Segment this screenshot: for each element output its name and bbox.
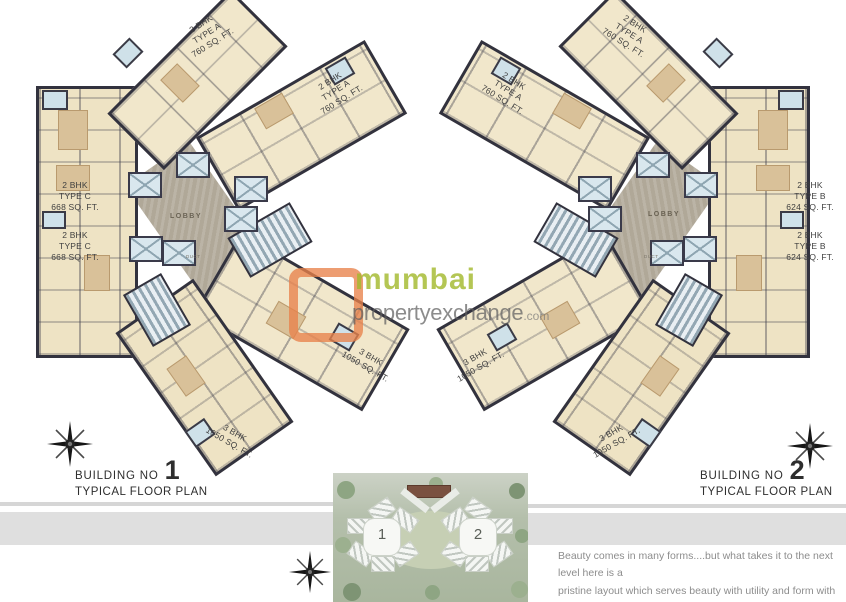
bathroom xyxy=(778,90,804,110)
lift-shaft xyxy=(234,176,268,202)
wing-bottom xyxy=(552,279,730,477)
bathroom xyxy=(702,37,733,68)
duct-label: DUCT xyxy=(186,254,201,259)
bathroom xyxy=(491,56,522,85)
furniture xyxy=(640,355,679,397)
lift-shaft xyxy=(650,240,684,266)
furniture xyxy=(56,165,90,191)
building-2-graphic xyxy=(438,15,818,465)
furniture xyxy=(254,93,294,130)
unit-label-2bhk-type-c-upper: 2 BHK TYPE C 668 SQ. FT. xyxy=(28,180,122,213)
staircase xyxy=(227,202,312,278)
wing-top-right xyxy=(196,40,407,211)
building-subtitle: TYPICAL FLOOR PLAN xyxy=(75,486,208,498)
unit-label-2bhk-type-a-top: 2 BHK TYPE A 760 SQ. FT. xyxy=(590,0,669,66)
tree xyxy=(343,583,361,601)
site-building-2-number: 2 xyxy=(441,526,515,543)
lift-shaft xyxy=(128,172,162,198)
furniture xyxy=(84,255,110,291)
site-building-1-number: 1 xyxy=(345,526,419,543)
staircase xyxy=(655,273,723,347)
building-title-prefix: BUILDING NO xyxy=(700,470,784,482)
gray-band-right xyxy=(528,513,846,545)
furniture xyxy=(756,165,790,191)
building-1-graphic xyxy=(28,15,408,465)
compass-icon xyxy=(44,420,96,468)
building-number: 2 xyxy=(790,460,806,482)
building-number: 1 xyxy=(165,460,181,482)
lift-shaft xyxy=(683,236,717,262)
bathroom xyxy=(42,211,66,229)
tree xyxy=(509,483,525,499)
unit-label-2bhk-type-a-right: 2 BHK TYPE A 760 SQ. FT. xyxy=(297,57,376,123)
brand-name-bottom: propertyexchange.com xyxy=(352,300,549,326)
lift-shaft xyxy=(636,152,670,178)
furniture xyxy=(552,93,592,130)
lift-shaft xyxy=(684,172,718,198)
furniture xyxy=(758,110,788,150)
wing-top-left xyxy=(439,40,650,211)
unit-label-3bhk-bottom: 3 BHK 1050 SQ. FT. xyxy=(194,409,271,466)
duct-label: DUCT xyxy=(644,254,659,259)
wing-right xyxy=(708,86,810,358)
building-title-prefix: BUILDING NO xyxy=(75,470,159,482)
divider-line-right xyxy=(528,504,846,508)
building-1-title: BUILDING NO 1 TYPICAL FLOOR PLAN xyxy=(75,460,208,498)
building-2-title: BUILDING NO 2 TYPICAL FLOOR PLAN xyxy=(700,460,833,498)
tree xyxy=(337,481,355,499)
site-wing xyxy=(465,556,489,572)
furniture xyxy=(166,355,205,397)
compass-icon xyxy=(288,550,332,594)
unit-label-2bhk-type-c-lower: 2 BHK TYPE C 668 SQ. FT. xyxy=(28,230,122,263)
site-wing xyxy=(371,556,395,572)
lift-shaft xyxy=(588,206,622,232)
unit-label-3bhk-left: 3 BHK 1050 SQ. FT. xyxy=(440,333,517,390)
unit-label-2bhk-type-a-top: 2 BHK TYPE A 760 SQ. FT. xyxy=(168,0,247,66)
staircase xyxy=(533,202,618,278)
lift-shaft xyxy=(578,176,612,202)
furniture xyxy=(646,63,686,103)
building-subtitle: TYPICAL FLOOR PLAN xyxy=(700,486,833,498)
bathroom xyxy=(184,418,215,448)
tree xyxy=(515,529,528,543)
staircase xyxy=(123,273,191,347)
lobby-area xyxy=(571,141,721,309)
lobby-label: LOBBY xyxy=(170,213,202,220)
lift-shaft xyxy=(176,152,210,178)
brand-name-top: mumbai xyxy=(355,263,476,297)
lift-shaft xyxy=(162,240,196,266)
wing-top xyxy=(558,0,738,170)
floorplan-sheet: 2 BHK TYPE A 760 SQ. FT. 2 BHK TYPE A 76… xyxy=(0,0,846,602)
marketing-caption: Beauty comes in many forms....but what t… xyxy=(558,548,838,602)
bathroom xyxy=(487,322,518,351)
unit-label-2bhk-type-b-upper: 2 BHK TYPE B 624 SQ. FT. xyxy=(774,180,846,213)
furniture xyxy=(736,255,762,291)
bathroom xyxy=(42,90,68,110)
lift-shaft xyxy=(129,236,163,262)
tree xyxy=(425,585,440,600)
bathroom xyxy=(112,37,143,68)
wing-bottom xyxy=(115,279,293,477)
furniture xyxy=(160,63,200,103)
compass-icon xyxy=(784,422,836,470)
furniture xyxy=(58,110,88,150)
site-building-1: 1 xyxy=(345,500,419,574)
unit-label-2bhk-type-b-lower: 2 BHK TYPE B 624 SQ. FT. xyxy=(774,230,846,263)
unit-label-3bhk-right: 3 BHK 1050 SQ. FT. xyxy=(330,333,407,390)
unit-label-2bhk-type-a-left: 2 BHK TYPE A 760 SQ. FT. xyxy=(469,57,548,123)
brand-suffix: .com xyxy=(523,309,549,323)
caption-line-1: Beauty comes in many forms....but what t… xyxy=(558,548,838,583)
site-plan-image: 1 2 xyxy=(333,473,528,602)
wing-left xyxy=(36,86,138,358)
bathroom xyxy=(325,56,356,85)
lobby-label: LOBBY xyxy=(648,211,680,218)
lift-shaft xyxy=(224,206,258,232)
bathroom xyxy=(630,418,661,448)
unit-label-3bhk-bottom: 3 BHK 1050 SQ. FT. xyxy=(576,409,653,466)
wing-top xyxy=(107,0,287,170)
site-building-2: 2 xyxy=(441,500,515,574)
caption-line-2: pristine layout which serves beauty with… xyxy=(558,583,838,602)
bathroom xyxy=(780,211,804,229)
tree xyxy=(511,581,528,598)
divider-line-left xyxy=(0,502,333,506)
lobby-area xyxy=(125,141,275,309)
gray-band-left xyxy=(0,512,333,545)
